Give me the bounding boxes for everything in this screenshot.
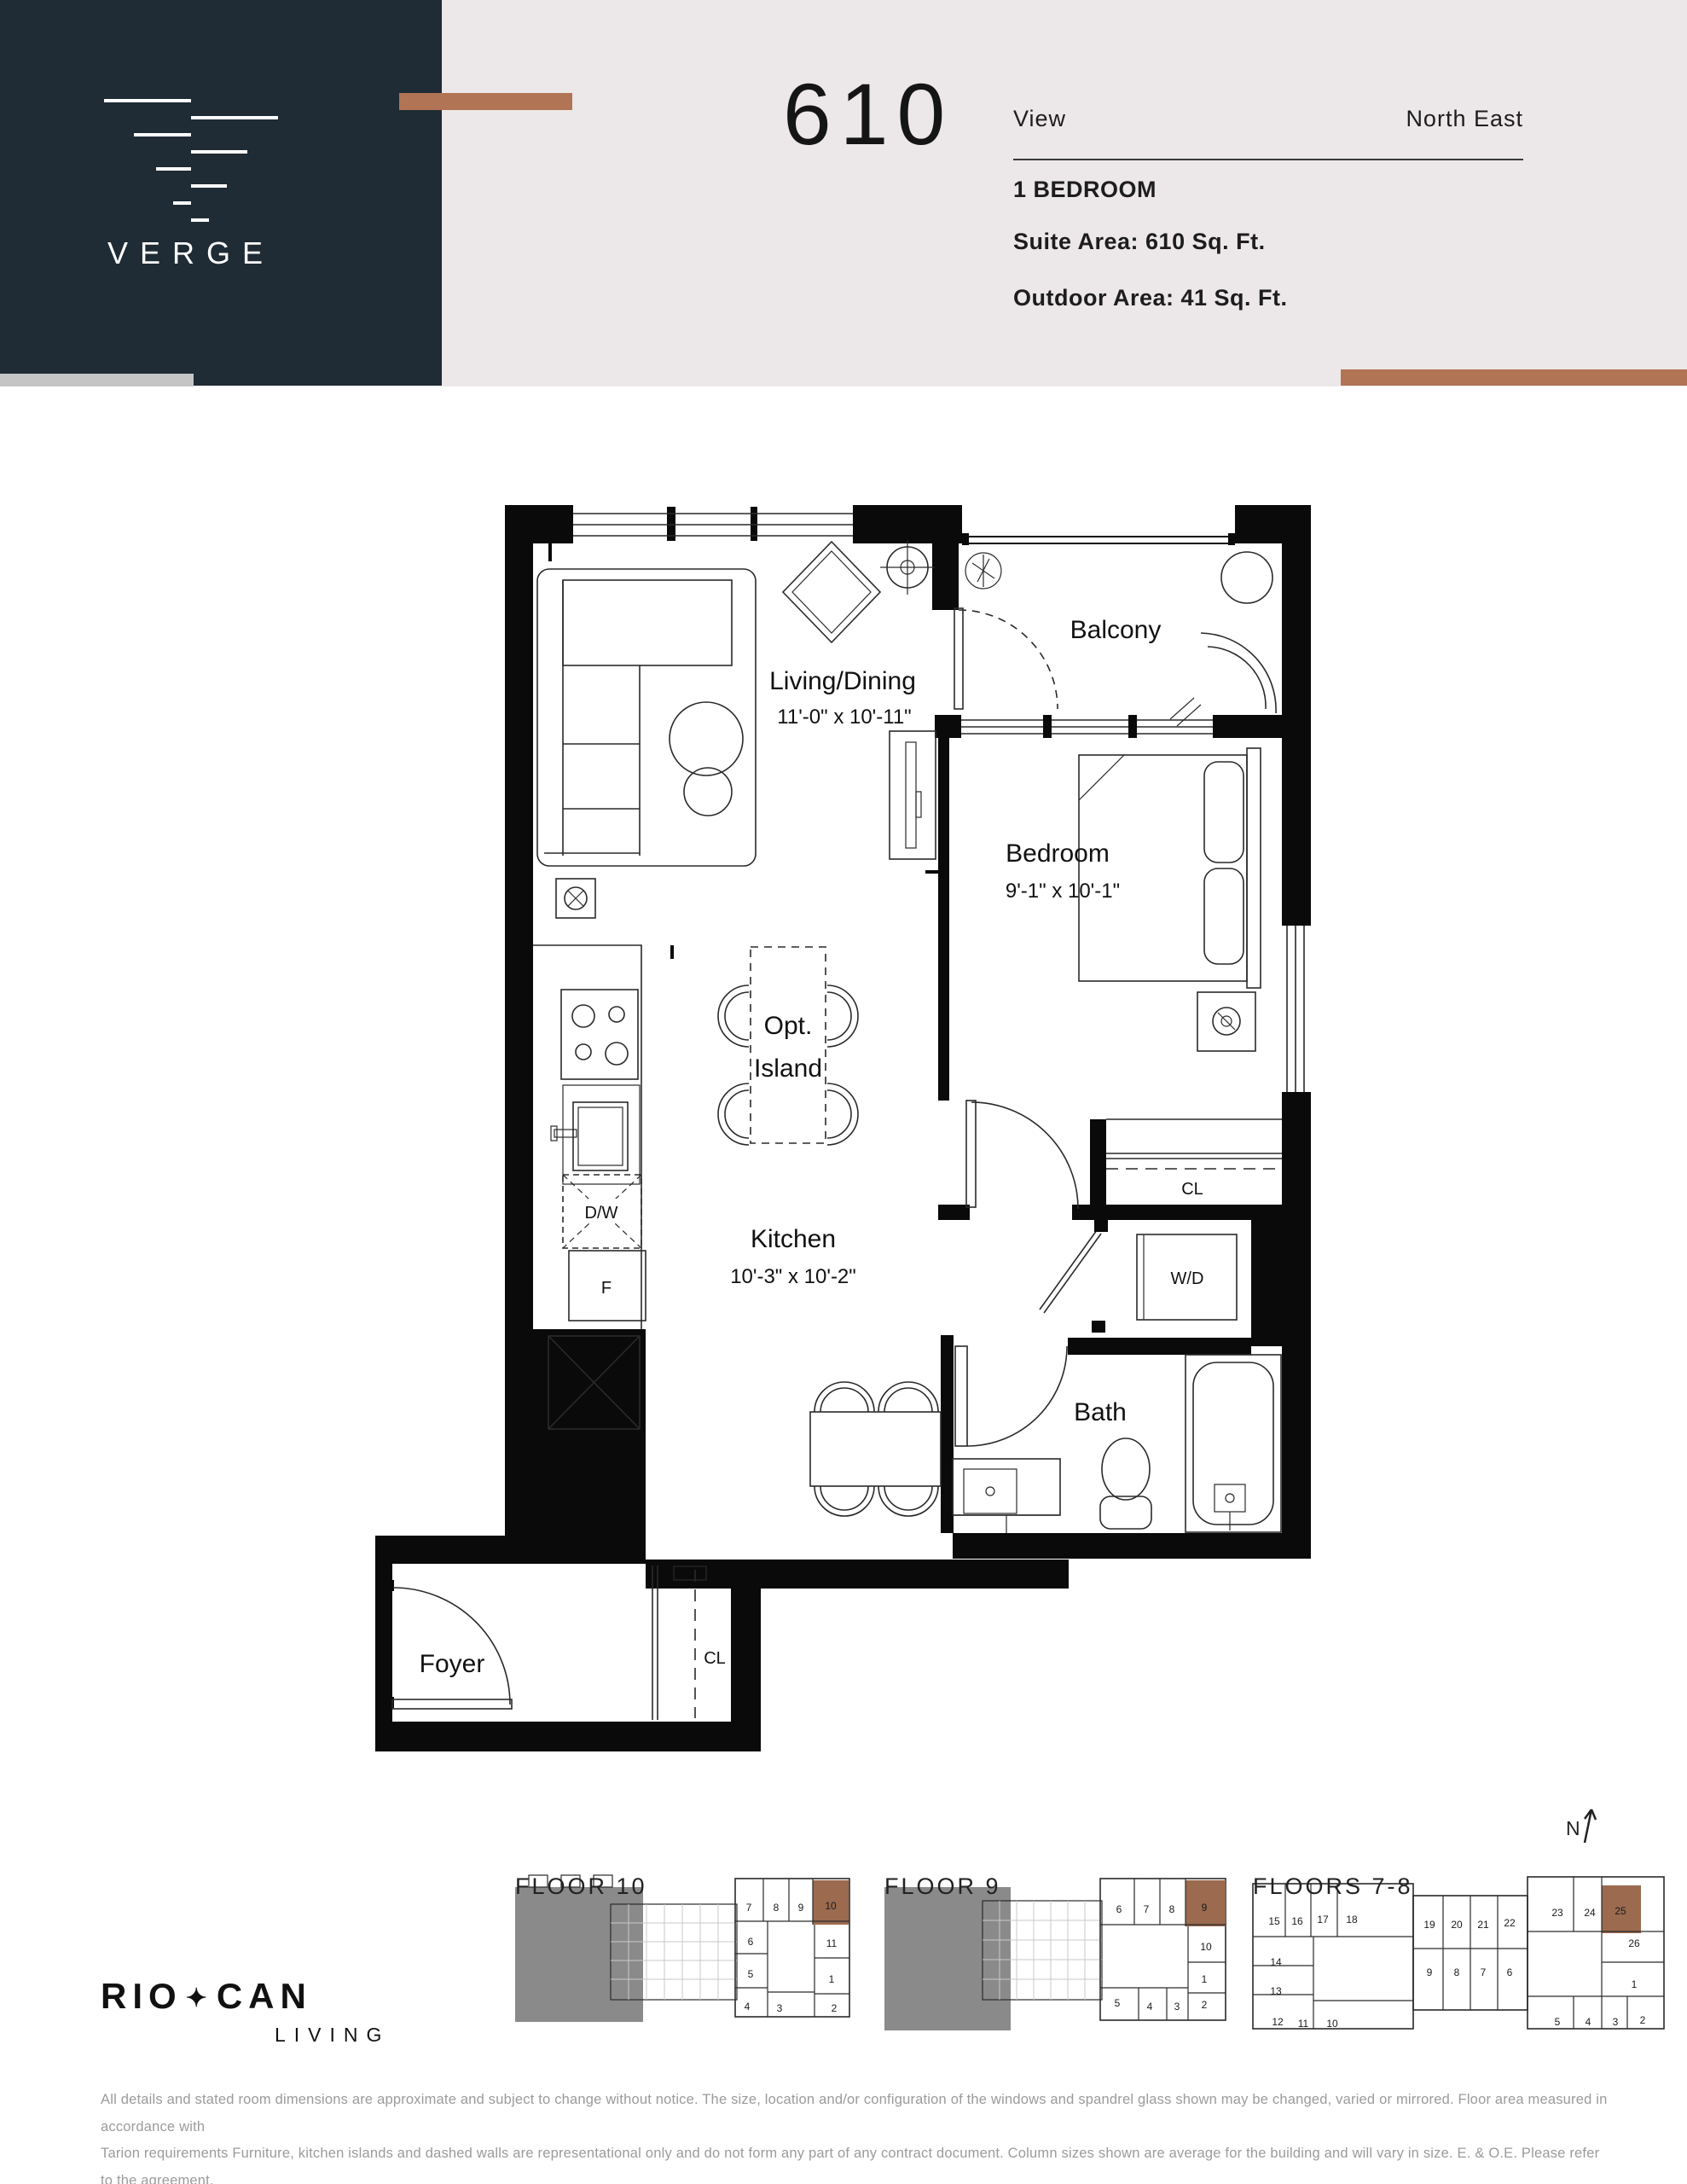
kp78-unit: 5	[1555, 2016, 1561, 2028]
view-row: View North East	[1013, 106, 1523, 132]
kp9-unit: 9	[1202, 1902, 1208, 1914]
keyplan-title-floors78: FLOORS 7-8	[1253, 1873, 1413, 1900]
optional-island	[718, 947, 858, 1145]
kp78-unit: 23	[1551, 1907, 1563, 1919]
kp10-unit: 6	[748, 1936, 754, 1948]
bedroom-east-window	[1282, 926, 1311, 1092]
foyer-closet	[652, 1565, 706, 1720]
foyer-label: Foyer	[420, 1650, 485, 1678]
kp78-unit: 22	[1504, 1917, 1516, 1929]
kp9-unit: 5	[1115, 1997, 1121, 2009]
kp78-unit: 1	[1632, 1978, 1638, 1990]
sink	[551, 1085, 640, 1184]
riocan-logo-sub: LIVING	[275, 2024, 390, 2047]
column-ticks	[550, 543, 938, 959]
suite-area: Suite Area: 610 Sq. Ft.	[1013, 229, 1266, 255]
kp78-unit: 9	[1427, 1966, 1433, 1978]
disclaimer: All details and stated room dimensions a…	[101, 2087, 1610, 2184]
floorplan-sheet: Living/Dining 11'-0" x 10'-11" Balcony B…	[0, 0, 1687, 2184]
copper-accent-bar-top	[399, 93, 572, 110]
kp78-unit: 4	[1586, 2016, 1591, 2028]
kp10-unit: 2	[832, 2002, 838, 2014]
entry-door	[392, 1588, 512, 1709]
toilet	[1100, 1438, 1151, 1529]
kp78-unit: 7	[1481, 1966, 1487, 1978]
keyplan-floor9: 6 7 8 9 10 1 5 4 3 2	[884, 1879, 1226, 2030]
riocan-logo-part2: CAN	[217, 1976, 312, 2017]
bath-label: Bath	[1074, 1398, 1127, 1426]
keyplan-title-floor9: FLOOR 9	[884, 1873, 1001, 1900]
kp78-unit: 21	[1477, 1919, 1489, 1931]
kp78-unit: 11	[1298, 2018, 1309, 2030]
kp10-unit: 3	[777, 2002, 783, 2014]
gray-accent-bar	[0, 374, 194, 386]
kp9-unit: 6	[1116, 1903, 1122, 1915]
kp78-unit: 3	[1613, 2016, 1619, 2028]
bedroom-closet-label: CL	[1181, 1180, 1203, 1199]
wd-label: W/D	[1171, 1269, 1204, 1288]
keyplan-title-floor10: FLOOR 10	[515, 1873, 647, 1900]
kp9-unit: 10	[1200, 1941, 1212, 1953]
maple-leaf-icon: ✦	[186, 1984, 213, 2013]
verge-logo-icon	[0, 0, 442, 386]
foyer-closet-label: CL	[704, 1649, 726, 1668]
kitchen-dims: 10'-3" x 10'-2"	[730, 1265, 856, 1288]
kp78-unit: 12	[1272, 2016, 1284, 2028]
kp78-unit: 16	[1291, 1915, 1303, 1927]
kp78-unit: 6	[1507, 1966, 1513, 1978]
dining-table	[810, 1382, 941, 1516]
kp78-unit: 20	[1451, 1919, 1463, 1931]
thermostat-symbol	[556, 879, 595, 918]
kp10-unit: 5	[748, 1968, 754, 1980]
north-label: N	[1566, 1817, 1580, 1840]
kitchen-fixtures	[533, 879, 858, 1329]
living-dims: 11'-0" x 10'-11"	[777, 706, 911, 729]
balcony-table	[1221, 552, 1272, 603]
kp9-unit: 7	[1144, 1903, 1150, 1915]
kp9-unit: 4	[1147, 2001, 1153, 2013]
bath-door	[955, 1346, 1067, 1446]
balcony-door	[954, 608, 1058, 709]
brand-block: VERGE	[0, 0, 442, 386]
tv-console	[890, 731, 936, 859]
view-value: North East	[1406, 106, 1523, 132]
kp78-unit: 24	[1584, 1907, 1596, 1919]
kp9-unit: 1	[1202, 1973, 1208, 1985]
kp10-unit: 8	[774, 1902, 780, 1914]
ceiling-light	[880, 540, 935, 595]
kp10-unit: 1	[829, 1973, 835, 1985]
balcony-tree	[965, 553, 1001, 589]
kp78-unit: 15	[1268, 1915, 1280, 1927]
side-tables	[670, 702, 743, 816]
kp9-unit: 8	[1169, 1903, 1175, 1915]
counter-edge	[533, 945, 641, 1329]
suite-type: 1 BEDROOM	[1013, 177, 1157, 203]
stove	[561, 990, 638, 1079]
riocan-logo: RIO✦CAN LIVING	[101, 1976, 312, 2017]
kp78-unit: 17	[1317, 1914, 1329, 1926]
bedroom-north-windows	[961, 717, 1213, 735]
bedroom-label: Bedroom	[1006, 839, 1110, 868]
disclaimer-line-2: Tarion requirements Furniture, kitchen i…	[101, 2140, 1610, 2184]
kp10-unit: 4	[745, 2001, 751, 2013]
accent-chair	[783, 542, 880, 642]
kp78-unit: 13	[1270, 1985, 1282, 1997]
dw-label: D/W	[585, 1204, 618, 1223]
living-label: Living/Dining	[769, 667, 916, 695]
kp78-unit: 14	[1270, 1956, 1282, 1968]
kp78-unit: 10	[1326, 2018, 1338, 2030]
vanity	[953, 1459, 1060, 1533]
kp9-unit: 3	[1174, 2001, 1180, 2013]
fridge-label: F	[601, 1279, 612, 1298]
kp9-unit: 2	[1202, 1999, 1208, 2011]
kp10-unit: 11	[826, 1937, 838, 1949]
riocan-logo-part1: RIO	[101, 1976, 183, 2017]
outdoor-area: Outdoor Area: 41 Sq. Ft.	[1013, 285, 1288, 311]
kitchen-label: Kitchen	[751, 1225, 836, 1253]
kp78-unit: 19	[1423, 1919, 1435, 1931]
view-label: View	[1013, 106, 1066, 132]
wd-bifold-door	[1040, 1220, 1108, 1333]
nightstand	[1197, 992, 1255, 1051]
brand-name: VERGE	[84, 235, 298, 271]
bedroom-door	[966, 1101, 1078, 1209]
kp78-unit: 25	[1615, 1905, 1626, 1917]
kp78-unit: 2	[1640, 2014, 1646, 2026]
island-label-1: Opt.	[764, 1012, 813, 1040]
bed	[1079, 748, 1261, 988]
balcony-lounge-chair	[1170, 633, 1276, 726]
sofa	[537, 569, 756, 866]
bedroom-closet	[1106, 1119, 1282, 1169]
balcony-railing	[962, 537, 1235, 543]
kp78-unit: 18	[1346, 1914, 1358, 1926]
balcony-label: Balcony	[1070, 616, 1162, 644]
island-label-2: Island	[754, 1054, 822, 1083]
kp10-unit: 7	[746, 1902, 752, 1914]
copper-accent-bar-right	[1341, 369, 1687, 386]
unit-number: 610	[783, 65, 954, 165]
bathtub	[1186, 1355, 1281, 1532]
header-divider	[1013, 159, 1523, 160]
kp78-unit: 26	[1628, 1937, 1640, 1949]
kp10-unit: 9	[798, 1902, 804, 1914]
disclaimer-line-1: All details and stated room dimensions a…	[101, 2087, 1610, 2140]
bedroom-dims: 9'-1" x 10'-1"	[1006, 880, 1120, 903]
north-arrow	[1585, 1809, 1596, 1843]
kp78-unit: 8	[1454, 1966, 1460, 1978]
kp10-unit: 10	[825, 1900, 837, 1912]
